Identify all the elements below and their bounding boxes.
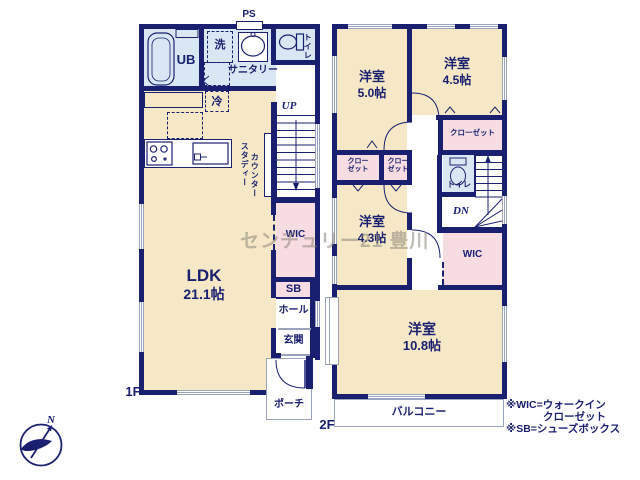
room-label-wic-2f: WIC — [443, 249, 502, 261]
compass-wing — [21, 439, 52, 451]
bay-window-line — [329, 298, 330, 364]
room-label-10-8: 洋室 — [387, 321, 457, 337]
room-label-closet-main: クローゼット — [443, 129, 502, 138]
wall — [306, 356, 313, 389]
door-mark — [353, 185, 363, 191]
window — [368, 394, 425, 399]
room-size-4-5: 4.5帖 — [425, 74, 489, 88]
room-label-sanitary: サニタリー — [228, 65, 278, 77]
label-ps: PS — [239, 9, 259, 21]
compass-needle — [31, 430, 49, 458]
window — [348, 24, 392, 29]
floorplan-page: UB 洗 サニタリー トイレ 冷 スタディー カウンター UP WIC LDK … — [0, 0, 640, 480]
label-stairs-up: UP — [277, 100, 301, 113]
label-study-counter-2: カウンター — [250, 146, 259, 204]
door-mark — [391, 185, 401, 191]
window — [139, 204, 144, 249]
room-label-sb: SB — [276, 283, 311, 296]
window — [332, 256, 337, 284]
room-size-5-0: 5.0帖 — [340, 87, 404, 101]
door-mark — [445, 107, 455, 113]
label-stairs-dn: DN — [449, 205, 473, 218]
window — [427, 24, 455, 29]
room-label-4-5: 洋室 — [425, 57, 489, 72]
toilet-icon-2f — [450, 158, 466, 165]
floor-label-2f: 2F — [316, 418, 338, 433]
window — [315, 301, 320, 327]
door-arc — [412, 93, 439, 120]
stove-icon — [147, 142, 172, 165]
toilet-icon-1f — [280, 35, 297, 49]
room-label-porch: ポーチ — [266, 399, 312, 411]
room-label-closet-b: クロー ゼット — [384, 158, 412, 174]
basin-icon — [242, 36, 265, 56]
closet-b-line1: クロー — [384, 158, 412, 166]
room-label-toilet-2f: トイレ — [443, 180, 475, 189]
window — [502, 196, 507, 224]
floorplan-1f: UB 洗 サニタリー トイレ 冷 スタディー カウンター UP WIC LDK … — [139, 24, 320, 395]
closet-a-line2: ゼット — [339, 166, 377, 174]
legend-line-3: ※SB=シューズボックス — [506, 423, 640, 435]
room-size-ldk: 21.1帖 — [159, 286, 249, 302]
room-label-5-0: 洋室 — [340, 70, 404, 85]
window — [177, 390, 250, 395]
legend-line-2: クローゼット — [543, 411, 640, 423]
window — [502, 306, 507, 362]
compass-circle — [21, 425, 62, 466]
bath-shelf-icon — [176, 30, 198, 38]
room-label-ub: UB — [172, 53, 200, 68]
label-fridge: 冷 — [205, 96, 229, 109]
bay-window — [325, 297, 339, 365]
room-label-washer: 洗 — [207, 39, 233, 52]
door-mark — [367, 141, 377, 148]
door-arc — [384, 122, 412, 150]
legend-line-1: ※WIC=ウォークイン — [506, 399, 640, 411]
watermark: センチュリー21 豊川 — [240, 226, 429, 253]
room-label-toilet-1f: トイレ — [303, 31, 312, 61]
room-label-ldk: LDK — [159, 266, 249, 286]
floorplan-2f: 洋室 5.0帖 洋室 4.5帖 クローゼット クロー ゼット クロー ゼット ト… — [332, 24, 507, 399]
window — [315, 124, 320, 188]
pipe-space-box — [236, 21, 263, 30]
floor-label-1f: 1F — [122, 385, 144, 400]
closet-a-line1: クロー — [339, 158, 377, 166]
door-mark — [490, 107, 500, 113]
room-label-closet-a: クロー ゼット — [339, 158, 377, 174]
window — [502, 57, 507, 100]
room-label-balcony: バルコニー — [334, 406, 504, 419]
window — [470, 24, 498, 29]
compass-north-label: N — [44, 414, 58, 427]
door-mark — [203, 76, 209, 86]
room-label-entrance: 玄関 — [274, 335, 313, 347]
window — [139, 302, 144, 352]
window — [332, 56, 337, 113]
label-study-counter-1: スタディー — [240, 138, 249, 190]
closet-b-line2: ゼット — [384, 166, 412, 174]
room-size-10-8: 10.8帖 — [387, 339, 457, 354]
room-label-hall: ホール — [274, 305, 313, 317]
